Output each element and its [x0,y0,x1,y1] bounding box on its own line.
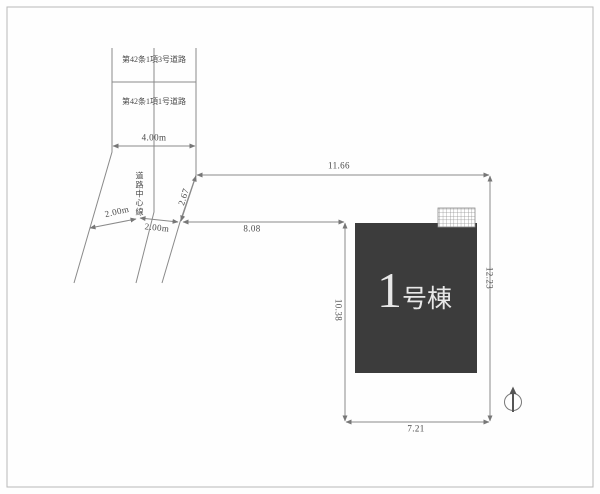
building-suffix: 号棟 [402,286,452,313]
site-plan-drawing [0,0,600,494]
lot-west-dimension: 10.38 [334,299,343,321]
road-right-edge [162,48,196,283]
lot-north-dimension: 11.66 [328,162,350,171]
lot-south-dimension: 7.21 [407,425,424,434]
site-plan-page: 第42条1項3号道路 第42条1項1号道路 4.00m 道路中心線 2.00m … [0,0,600,494]
road-width-dimension: 4.00m [142,134,167,143]
road-center-line-label: 道路中心線 [135,172,143,217]
road-lower-section-label: 第42条1項1号道路 [122,98,186,106]
north-arrow-icon [505,387,522,413]
building-name: 1号棟 [377,265,452,315]
lot-northwest-dimension: 8.08 [243,225,260,234]
road-half-width-left-dimension-line [90,219,136,228]
drawing-frame [7,7,593,487]
lot-east-dimension: 12.23 [485,267,494,289]
building-number: 1 [377,262,402,318]
road-upper-section-label: 第42条1項3号道路 [122,56,186,64]
road-center-line [136,48,154,283]
road-left-edge [74,48,112,283]
hatched-entrance-block [438,208,475,227]
